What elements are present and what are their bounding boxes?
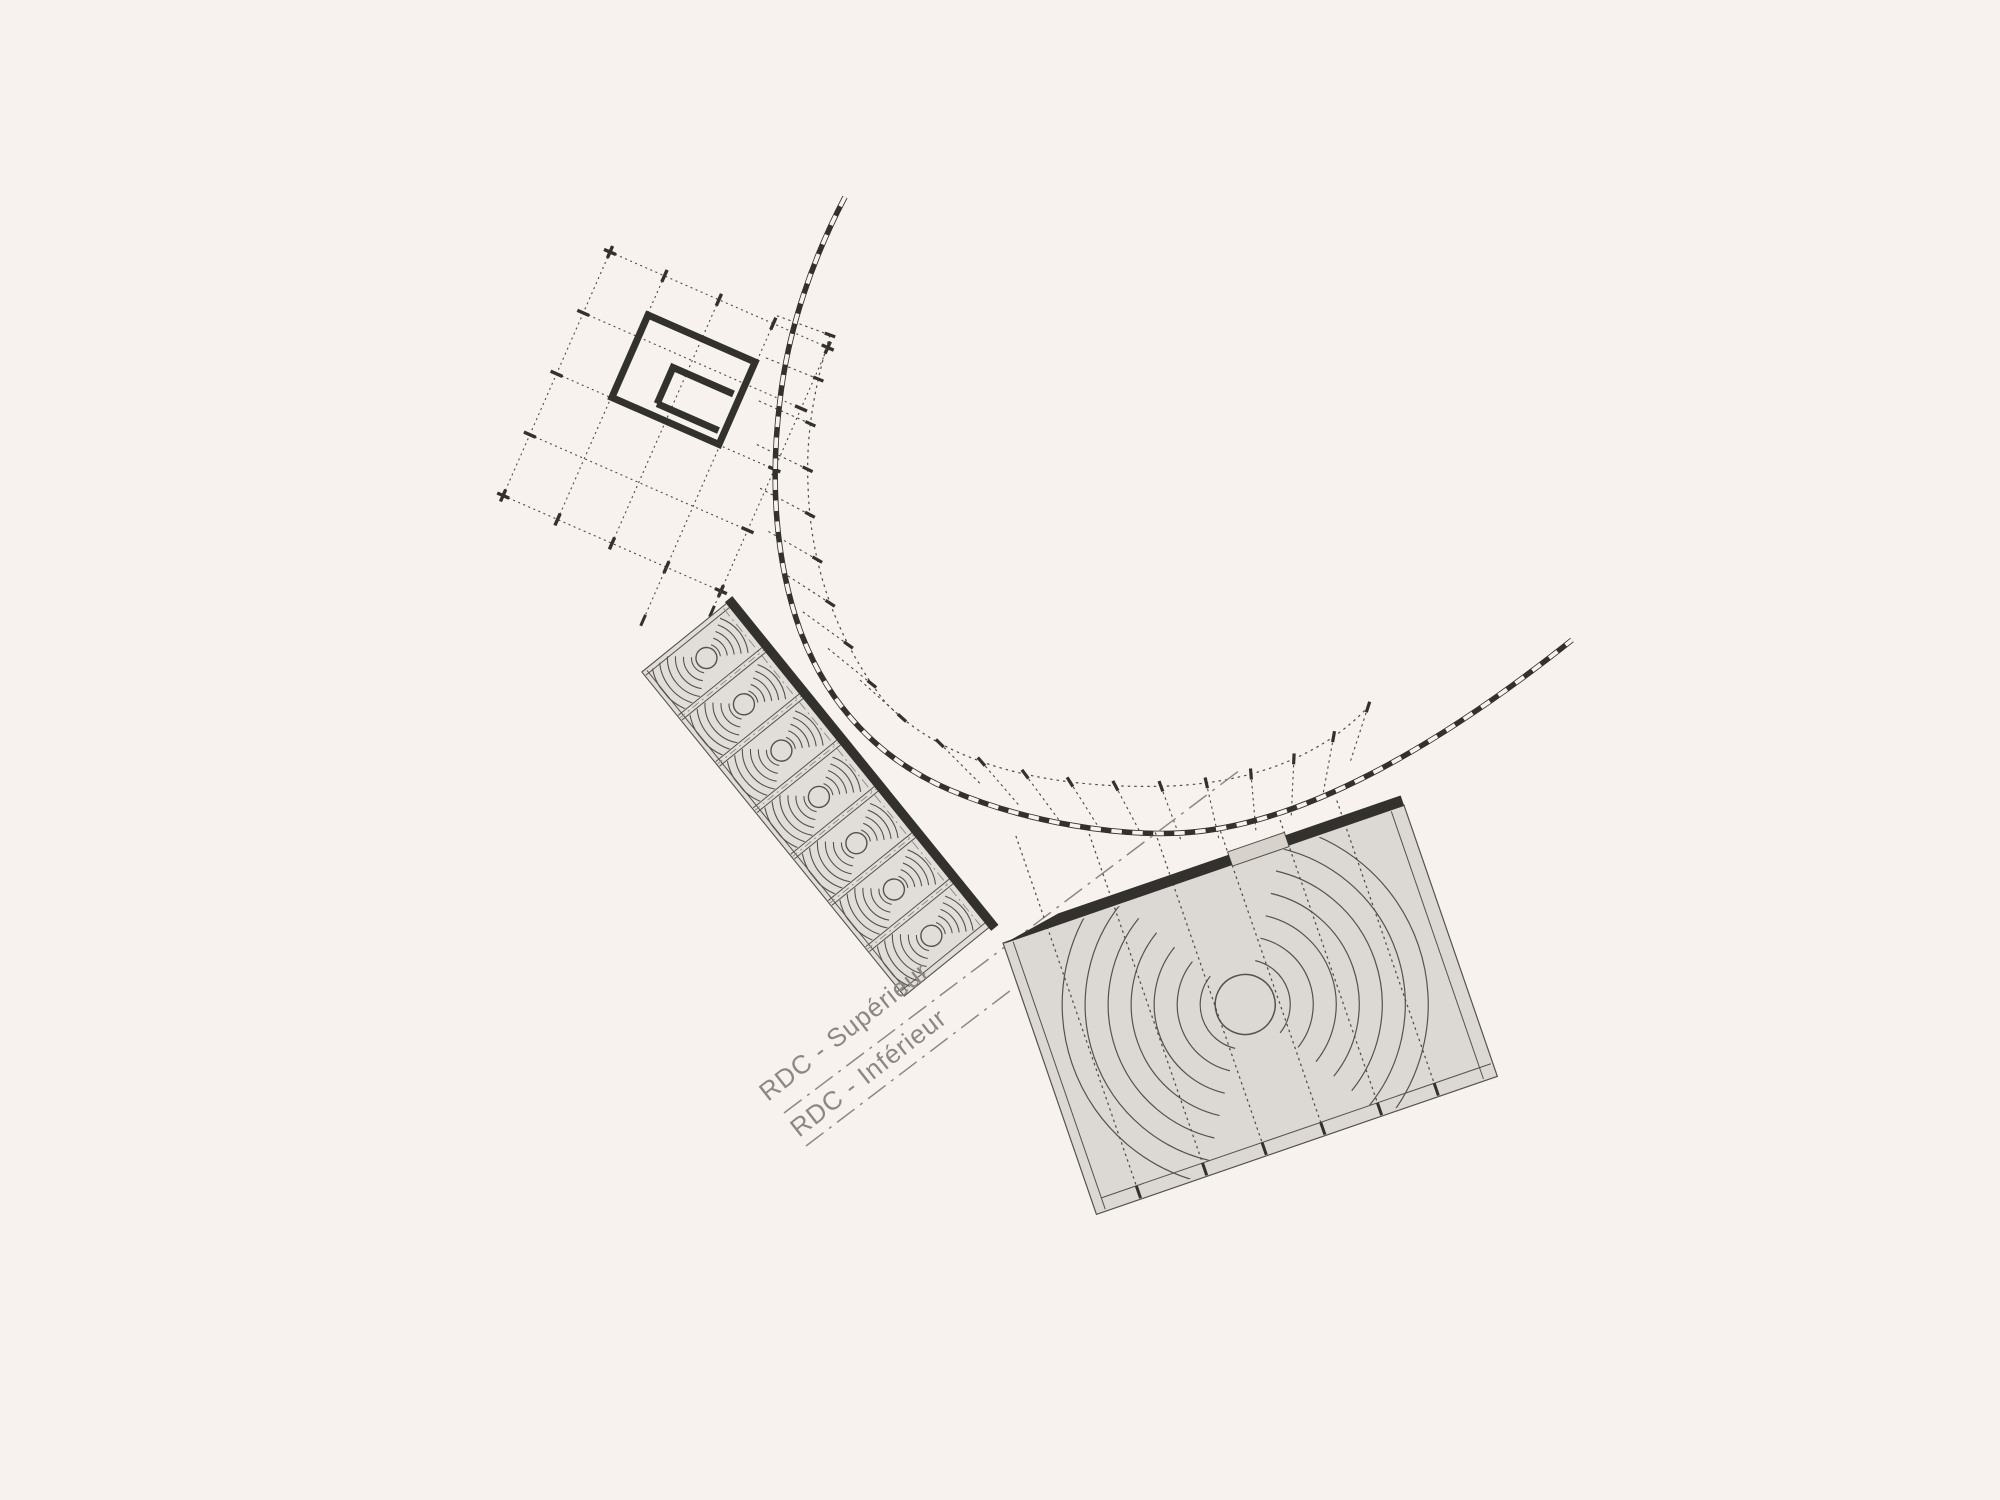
main-hall-local xyxy=(971,713,1499,1219)
main-hall-building xyxy=(971,713,1499,1219)
gallery-strip-local xyxy=(637,592,1000,1001)
plan-canvas: RDC - Supérieur RDC - Inférieur xyxy=(0,0,2000,1500)
tower-walls xyxy=(612,315,755,444)
site-plan-svg: RDC - Supérieur RDC - Inférieur xyxy=(0,0,2000,1500)
railway-line xyxy=(775,197,1572,833)
platform-offset-curve xyxy=(808,335,1368,786)
gallery-strip-building xyxy=(637,592,1000,1001)
tower-plan-outline xyxy=(612,315,755,444)
railway-curve-band xyxy=(756,197,1573,841)
